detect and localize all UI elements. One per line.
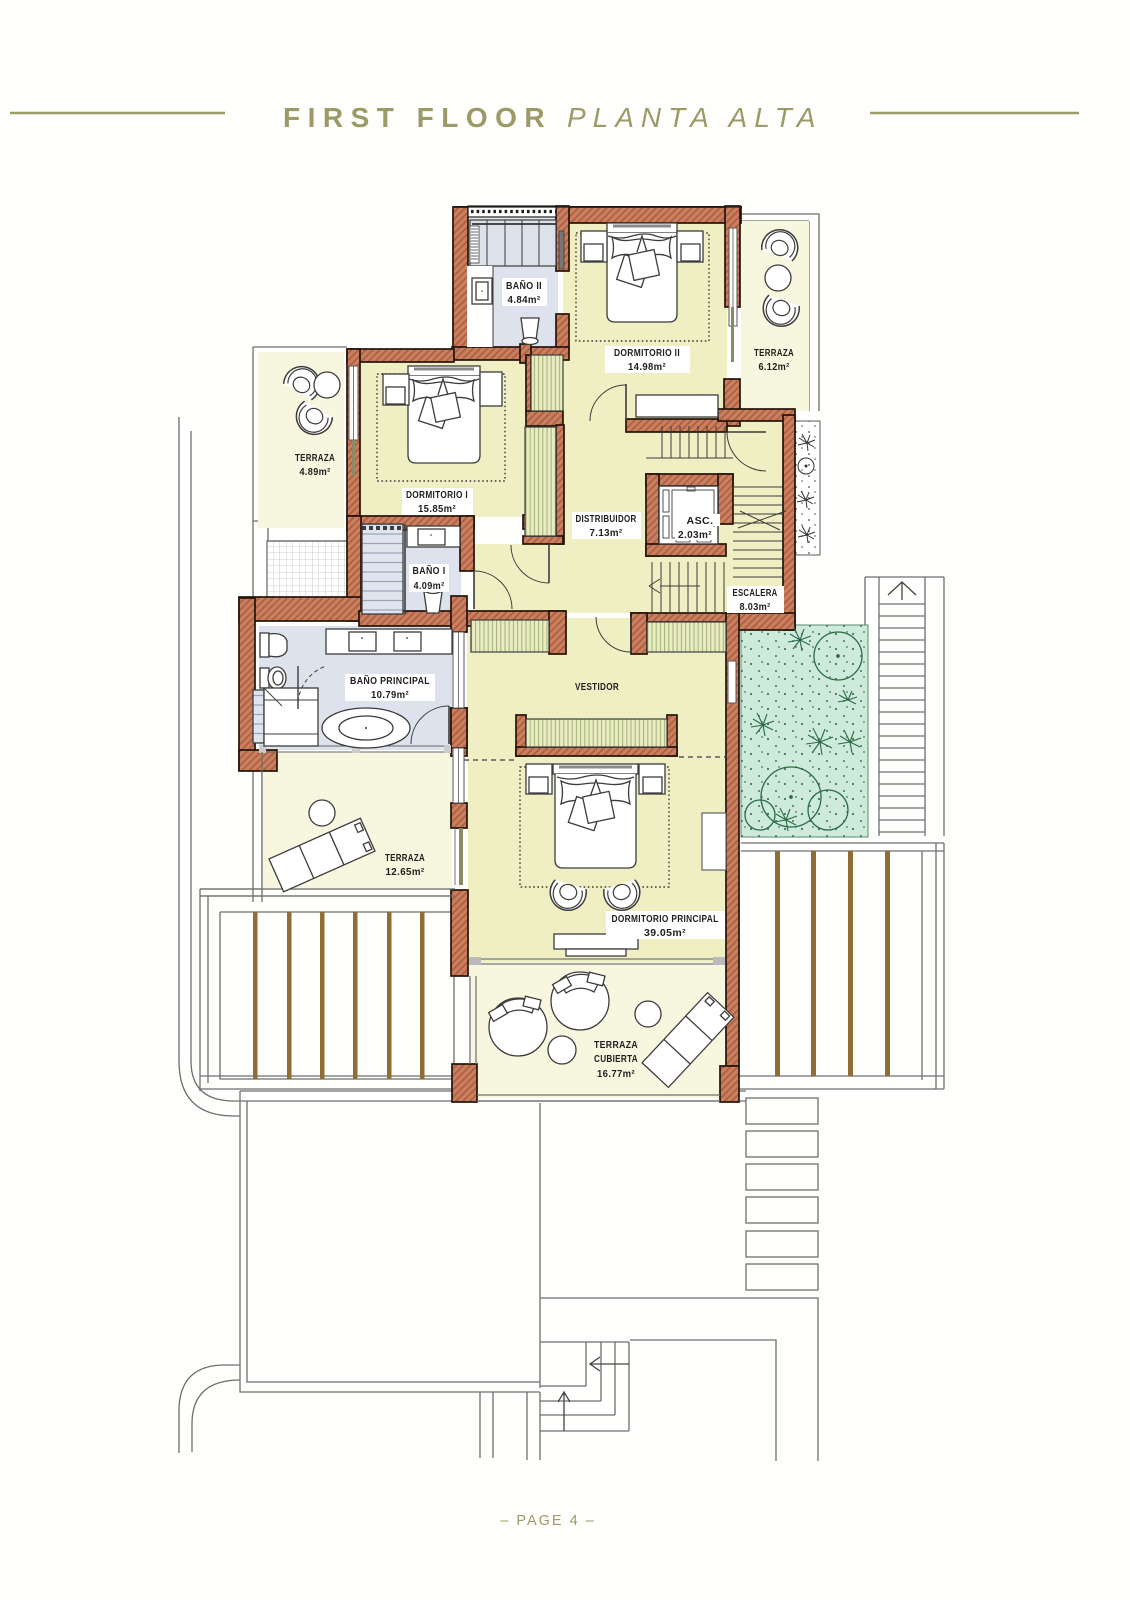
svg-text:39.05m²: 39.05m²	[644, 928, 686, 939]
svg-text:TERRAZA: TERRAZA	[385, 853, 425, 864]
svg-text:– PAGE 4 –: – PAGE 4 –	[500, 1513, 596, 1529]
svg-text:15.85m²: 15.85m²	[418, 504, 456, 515]
svg-text:VESTIDOR: VESTIDOR	[575, 682, 619, 693]
svg-text:4.09m²: 4.09m²	[414, 581, 445, 592]
svg-text:4.84m²: 4.84m²	[508, 295, 541, 306]
svg-text:BAÑO PRINCIPAL: BAÑO PRINCIPAL	[350, 674, 430, 687]
svg-text:2.03m²: 2.03m²	[678, 530, 712, 541]
svg-text:16.77m²: 16.77m²	[597, 1069, 635, 1080]
svg-text:12.65m²: 12.65m²	[386, 867, 425, 878]
svg-text:DORMITORIO II: DORMITORIO II	[614, 348, 680, 359]
svg-text:14.98m²: 14.98m²	[628, 362, 666, 373]
svg-text:DORMITORIO I: DORMITORIO I	[406, 490, 468, 501]
svg-text:ESCALERA: ESCALERA	[733, 588, 778, 599]
svg-text:TERRAZA: TERRAZA	[295, 453, 335, 464]
svg-text:ASC.: ASC.	[687, 516, 714, 527]
svg-text:PLANTA ALTA: PLANTA ALTA	[567, 102, 822, 133]
svg-text:4.89m²: 4.89m²	[300, 467, 331, 478]
svg-text:TERRAZA: TERRAZA	[594, 1040, 638, 1051]
svg-text:CUBIERTA: CUBIERTA	[594, 1054, 638, 1065]
svg-text:TERRAZA: TERRAZA	[754, 348, 794, 359]
svg-text:6.12m²: 6.12m²	[759, 362, 790, 373]
svg-text:DORMITORIO PRINCIPAL: DORMITORIO PRINCIPAL	[612, 914, 719, 925]
svg-text:8.03m²: 8.03m²	[740, 602, 771, 613]
svg-text:BAÑO II: BAÑO II	[506, 279, 542, 292]
svg-text:7.13m²: 7.13m²	[590, 528, 623, 539]
svg-text:FIRST FLOOR: FIRST FLOOR	[283, 102, 552, 133]
svg-text:BAÑO I: BAÑO I	[413, 564, 446, 577]
svg-text:DISTRIBUIDOR: DISTRIBUIDOR	[576, 514, 637, 525]
svg-text:10.79m²: 10.79m²	[371, 690, 409, 701]
